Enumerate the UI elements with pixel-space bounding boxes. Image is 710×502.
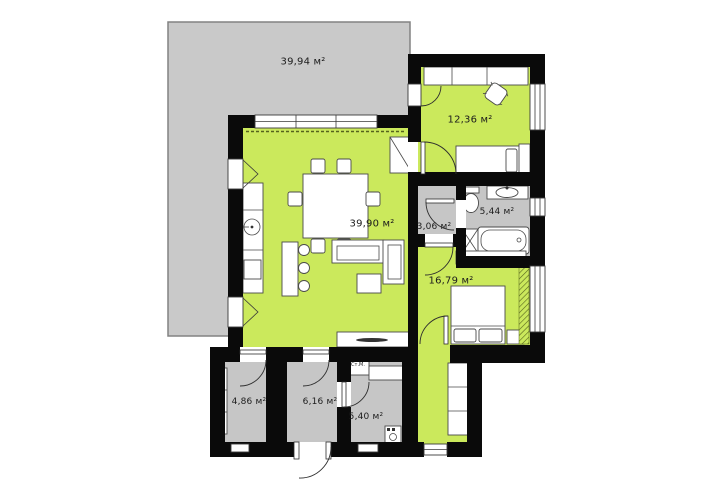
window-corridor-south [424, 444, 447, 455]
entrance-door [294, 442, 331, 478]
tv-stand [337, 332, 409, 347]
nightstand-study [519, 144, 530, 174]
window-bathroom-east [530, 198, 545, 216]
room-label-hall: 3,06 м² [417, 222, 452, 232]
wardrobe-top [424, 67, 528, 85]
laundry-counter [369, 366, 403, 380]
vent-window-storage [231, 444, 249, 452]
single-bed [456, 146, 520, 175]
window-study-east [530, 84, 545, 130]
kitchen-island [282, 242, 298, 296]
pillow [479, 329, 502, 342]
window-bedroom-east [530, 266, 545, 332]
room-label-entry: 6,16 м² [303, 397, 338, 407]
wardrobe-cells [448, 363, 470, 435]
boiler [385, 426, 401, 443]
floor-plan [0, 0, 710, 502]
room-label-terrace: 39,94 м² [281, 57, 326, 68]
pillow [454, 329, 476, 342]
room-label-living: 39,90 м² [350, 219, 395, 230]
room-label-bathroom: 5,44 м² [480, 207, 515, 217]
vent-window-laundry [358, 444, 378, 452]
floor-plan-canvas: 39,94 м² 12,36 м² 39,90 м² 3,06 м² 5,44 … [0, 0, 710, 502]
room-label-storage: 4,86 м² [232, 397, 267, 407]
double-bed [451, 286, 505, 344]
bathtub [478, 227, 529, 254]
room-label-bedroom: 16,79 м² [429, 276, 474, 287]
window-living-north [255, 115, 377, 128]
curtain-hatch-strip [519, 258, 529, 344]
stove [244, 260, 261, 279]
coffee-table [357, 274, 381, 293]
bar-stools [299, 245, 310, 292]
room-label-study: 12,36 м² [448, 115, 493, 126]
room-label-laundry: 5,40 м² [349, 412, 384, 422]
bathroom-sink [487, 186, 528, 199]
washing-machine-label: Ст.М. [351, 362, 365, 368]
